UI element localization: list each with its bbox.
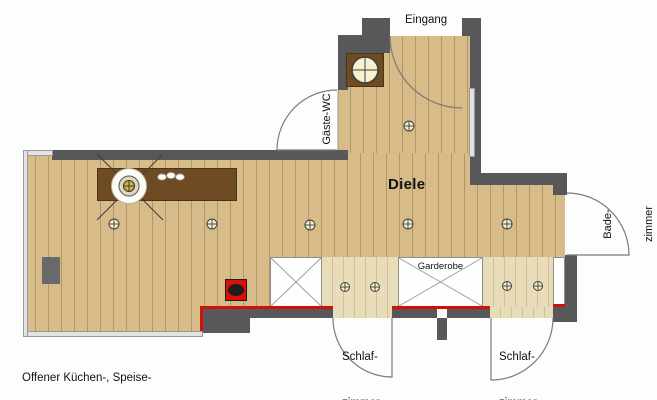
bedroom2-label-line2: zimmer (499, 396, 537, 400)
living-room-label-line1: Offener Küchen-, Speise- (22, 371, 152, 386)
wc-vanity (346, 53, 384, 87)
wardrobe-label: Garderobe (398, 261, 483, 274)
window-hall-east (469, 88, 475, 157)
guest-wc-label: Gäste-WC (320, 88, 334, 150)
living-room-furniture-block (42, 257, 60, 284)
niche-box (553, 257, 565, 307)
floor-vestibule-2 (483, 257, 553, 307)
red-wall-marking-2 (200, 306, 203, 333)
wall-southeast-corner (553, 307, 577, 322)
fireplace-stove (225, 279, 247, 301)
wall-entrance-right-pier (462, 18, 481, 36)
hallway-label: Diele (388, 175, 425, 195)
bedroom2-label-line1: Schlaf- (499, 350, 537, 365)
bathroom-label-line1: Bade- (602, 201, 616, 247)
entrance-label: Eingang (405, 13, 447, 28)
bedroom1-label: Schlaf- zimmer (342, 320, 380, 400)
door-threshold-bedroom-2 (490, 307, 553, 318)
wall-south-corner-block (202, 308, 250, 333)
wall-bedroom-divider-stub (437, 318, 447, 340)
red-wall-marking-4 (553, 304, 565, 307)
red-wall-marking-3 (392, 306, 490, 309)
window-south (27, 331, 203, 337)
living-room-label: Offener Küchen-, Speise- und Wohnraum (22, 341, 152, 400)
bedroom1-label-line2: zimmer (342, 396, 380, 400)
wall-living-north (52, 150, 348, 160)
bathroom-label: Bade- zimmer (574, 201, 604, 247)
wall-south-c (447, 308, 490, 318)
wall-wc-north (338, 35, 390, 53)
wall-south-b (392, 308, 437, 318)
wall-notch-south (470, 173, 567, 185)
window-northwest (27, 150, 53, 156)
closet-box (270, 257, 322, 307)
fireplace-oval-icon (228, 284, 244, 296)
wall-south-a (250, 308, 333, 318)
window-west (23, 150, 28, 337)
wall-entrance-left-pier (362, 18, 390, 36)
floor-plan: Eingang Gäste-WC Diele Garderobe Bade- z… (0, 0, 657, 400)
bedroom1-label-line1: Schlaf- (342, 350, 380, 365)
door-threshold-bedroom-1 (333, 307, 392, 318)
bathroom-label-line2: zimmer (643, 201, 657, 247)
red-wall-marking-1 (200, 306, 333, 309)
floor-vestibule-1 (322, 257, 398, 307)
wall-bath-door-jamb-top (553, 185, 567, 195)
kitchen-counter (97, 168, 237, 201)
exterior-notch (481, 150, 565, 173)
bedroom2-label: Schlaf- zimmer (499, 320, 537, 400)
